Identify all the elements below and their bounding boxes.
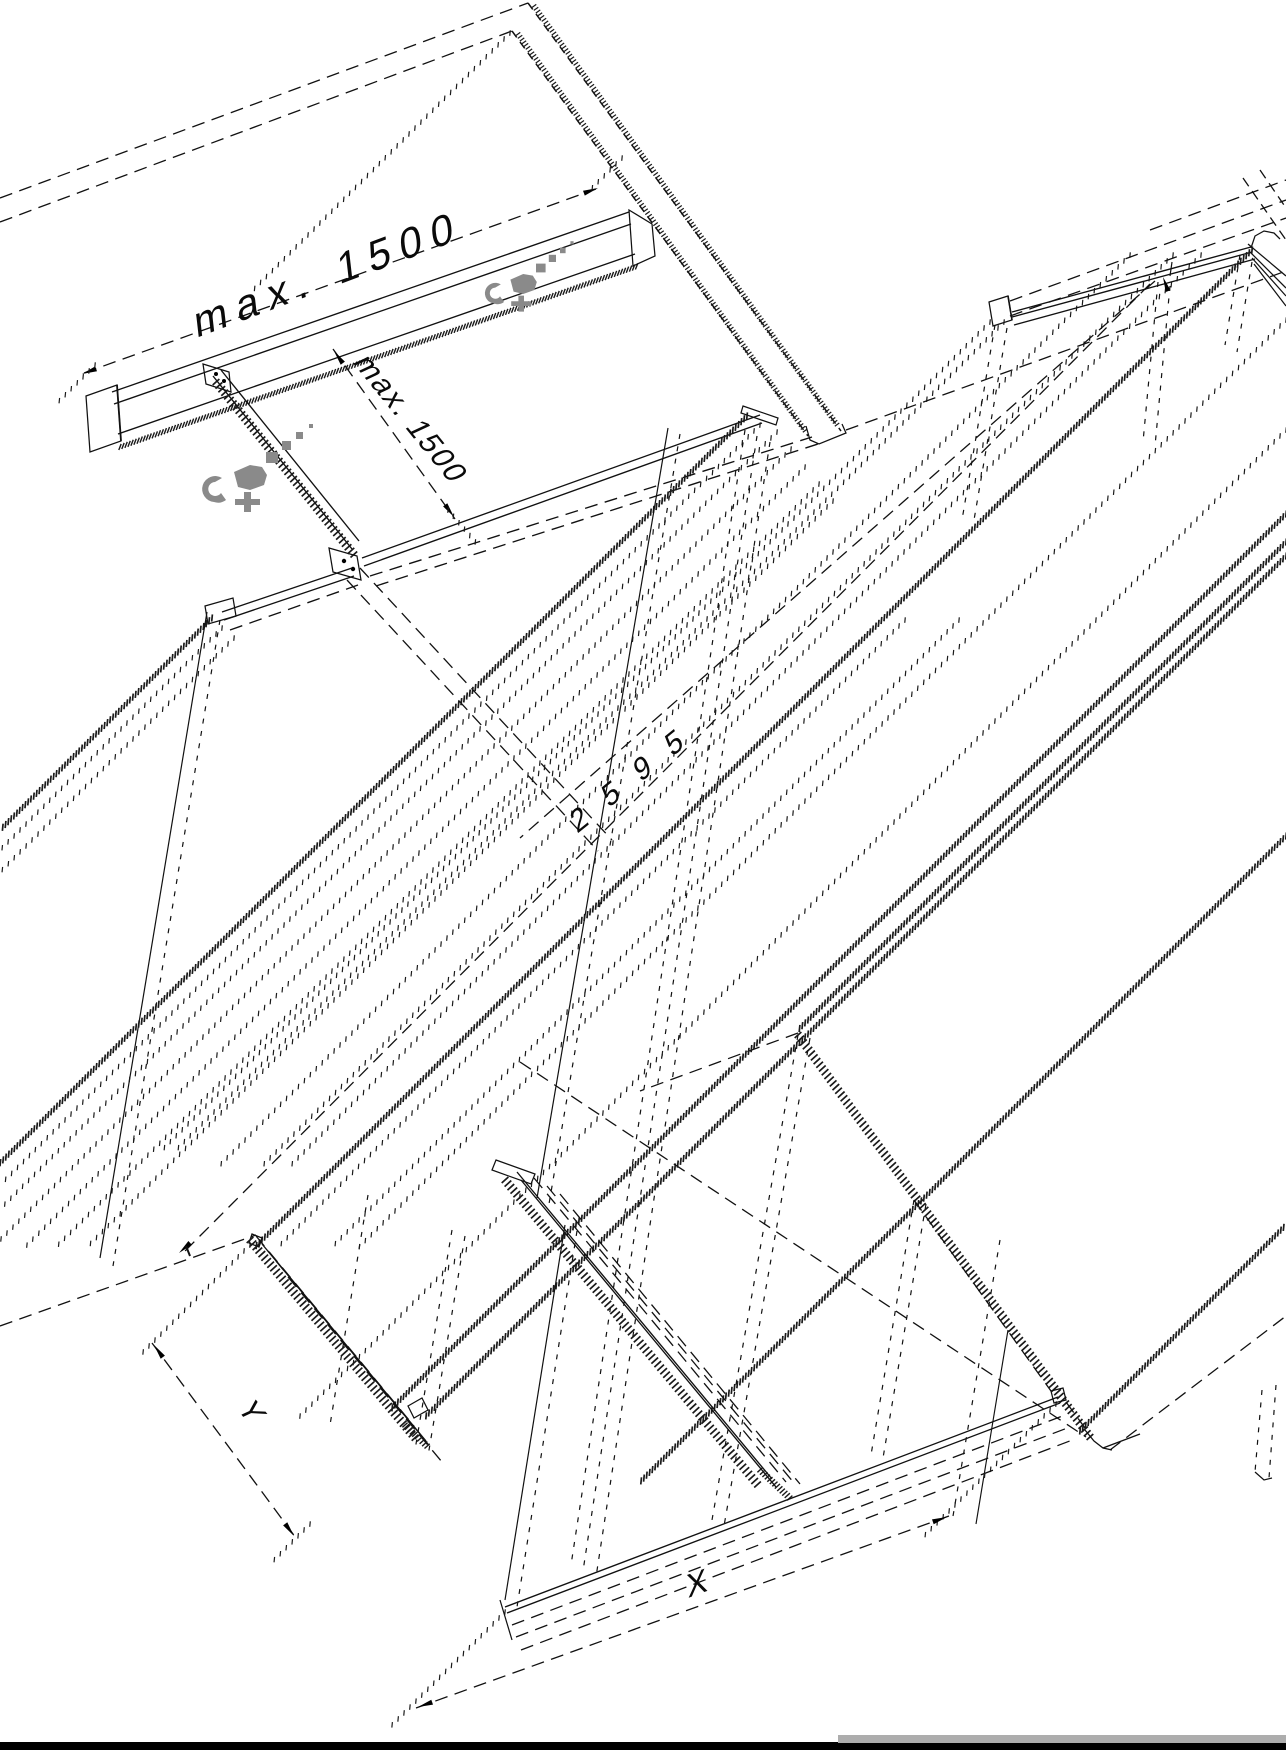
svg-text:X: X xyxy=(685,1561,711,1605)
